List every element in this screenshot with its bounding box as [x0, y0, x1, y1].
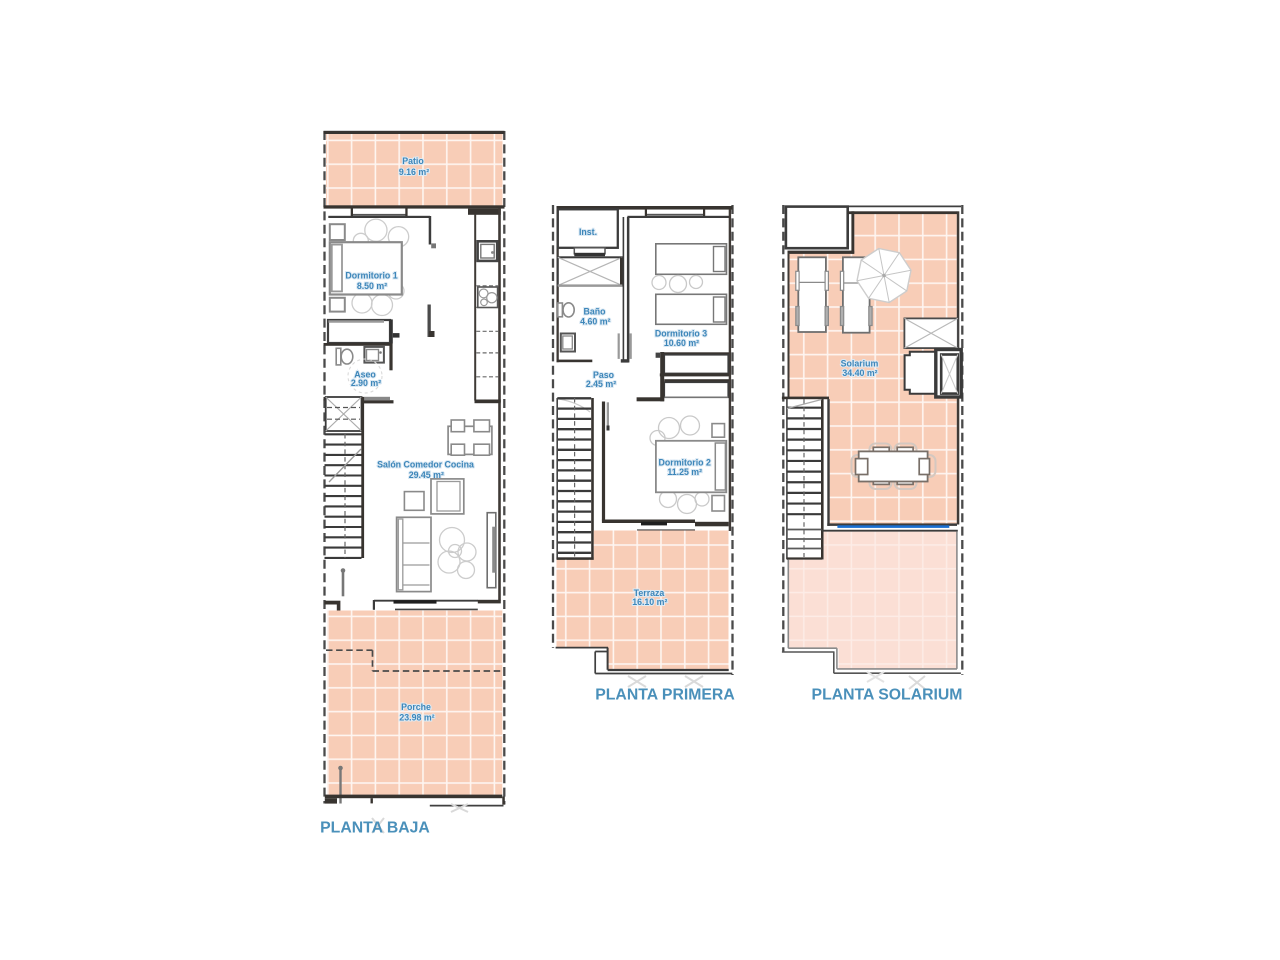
svg-text:23.98 m²: 23.98 m²: [399, 713, 434, 723]
svg-text:Baño: Baño: [584, 307, 607, 317]
svg-text:11.25 m²: 11.25 m²: [667, 467, 702, 477]
svg-text:Porche: Porche: [401, 702, 431, 712]
svg-text:PLANTA PRIMERA: PLANTA PRIMERA: [595, 687, 735, 704]
svg-text:PLANTA BAJA: PLANTA BAJA: [320, 820, 430, 837]
svg-text:Dormitorio 1: Dormitorio 1: [345, 271, 397, 281]
svg-text:PLANTA SOLARIUM: PLANTA SOLARIUM: [812, 687, 963, 704]
svg-text:Inst.: Inst.: [579, 227, 597, 237]
svg-text:2.45 m²: 2.45 m²: [586, 379, 616, 389]
svg-text:Salón Comedor Cocina: Salón Comedor Cocina: [377, 460, 474, 470]
svg-text:10.60 m²: 10.60 m²: [664, 338, 699, 348]
svg-text:34.40 m²: 34.40 m²: [842, 368, 877, 378]
svg-text:Patio: Patio: [402, 156, 424, 166]
svg-text:9.16 m²: 9.16 m²: [399, 167, 429, 177]
svg-text:8.50 m²: 8.50 m²: [357, 281, 387, 291]
svg-text:2.90 m²: 2.90 m²: [351, 378, 381, 388]
svg-text:16.10 m²: 16.10 m²: [632, 597, 667, 607]
svg-text:4.60 m²: 4.60 m²: [580, 317, 610, 327]
